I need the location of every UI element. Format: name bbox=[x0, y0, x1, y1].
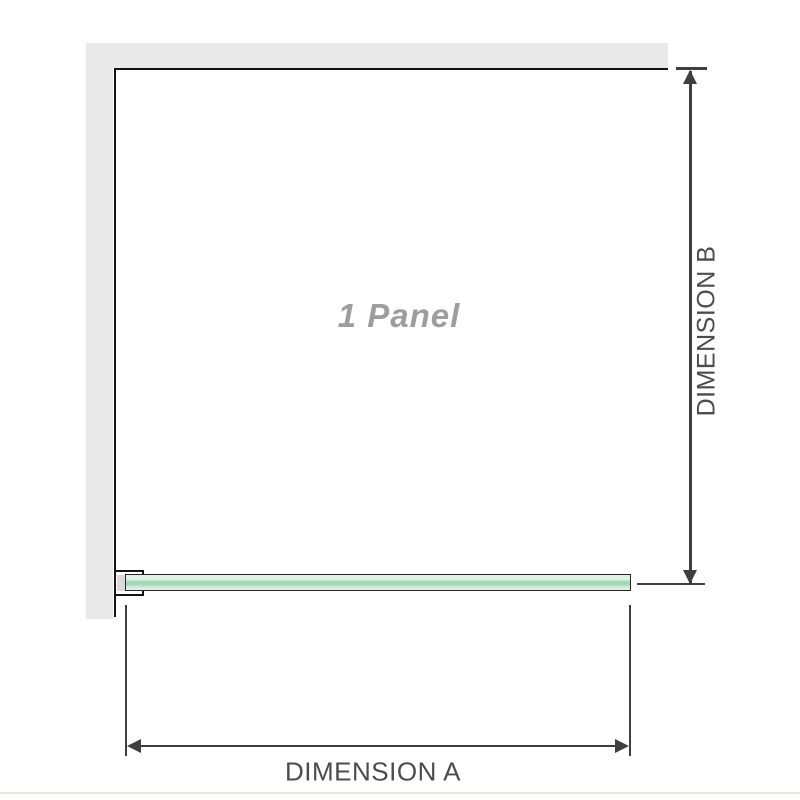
arrow-down-icon bbox=[683, 570, 697, 584]
dimension-b-label: DIMENSION B bbox=[693, 246, 722, 417]
dimension-a-extension-right bbox=[629, 605, 631, 756]
dimension-b-line bbox=[689, 71, 692, 584]
arrow-up-icon bbox=[683, 70, 697, 84]
dimension-a-line bbox=[131, 745, 625, 748]
bottom-divider bbox=[0, 792, 800, 794]
dimension-a-extension-left bbox=[125, 605, 127, 756]
dimension-a-label: DIMENSION A bbox=[285, 757, 461, 788]
panel-count-label: 1 Panel bbox=[338, 297, 461, 335]
wall-bracket-insert bbox=[117, 575, 125, 591]
arrow-right-icon bbox=[615, 739, 629, 753]
enclosure-outline-left bbox=[114, 68, 116, 617]
wall-top bbox=[86, 43, 668, 68]
enclosure-outline-top bbox=[114, 68, 668, 70]
wall-left bbox=[86, 43, 113, 619]
glass-panel bbox=[125, 574, 631, 591]
arrow-left-icon bbox=[127, 739, 141, 753]
